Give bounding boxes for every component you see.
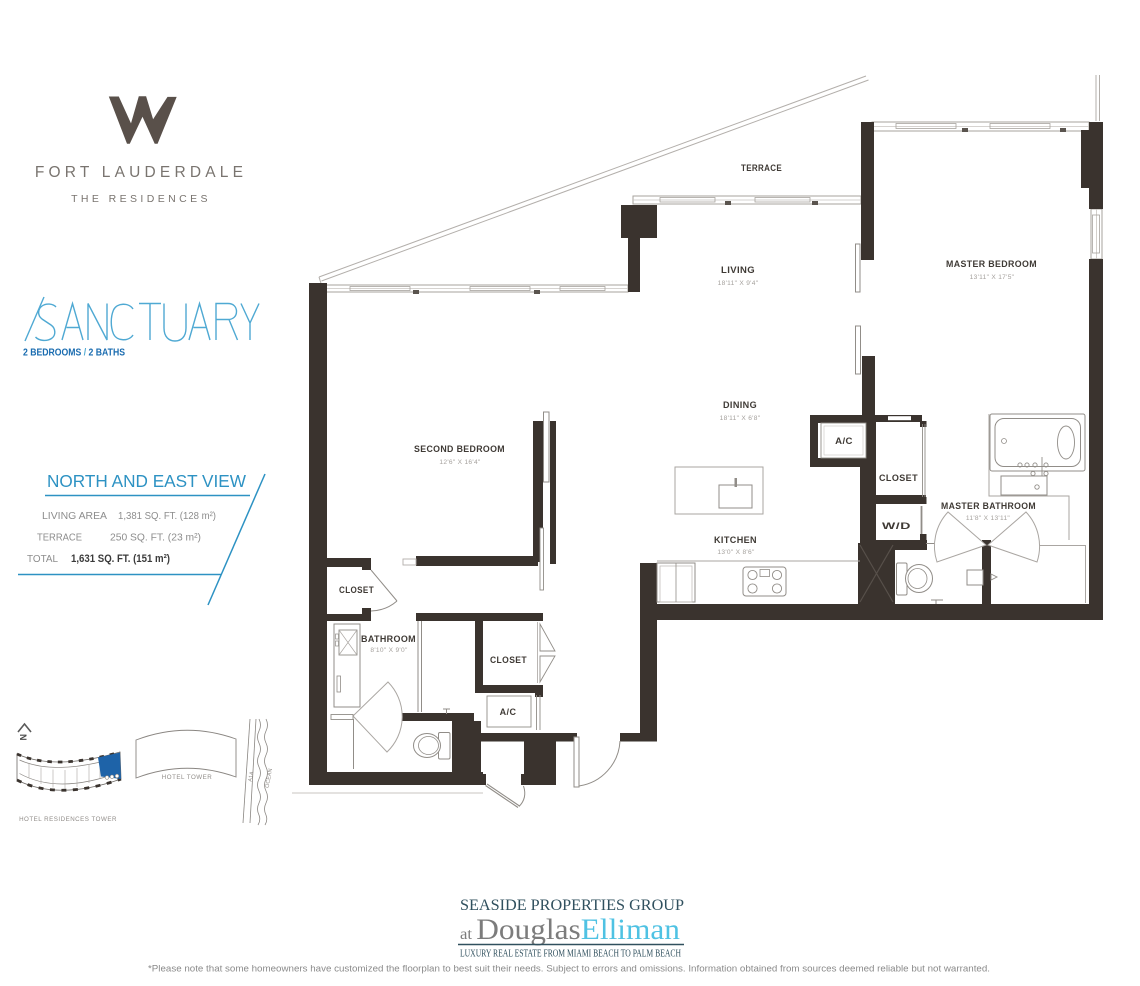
svg-text:MASTER BEDROOM: MASTER BEDROOM — [946, 259, 1037, 270]
svg-text:A/C: A/C — [835, 436, 853, 447]
svg-text:1,631 SQ. FT. (151 m²): 1,631 SQ. FT. (151 m²) — [71, 553, 170, 565]
svg-text:SEASIDE PROPERTIES GROUP: SEASIDE PROPERTIES GROUP — [460, 897, 684, 914]
svg-text:THE RESIDENCES: THE RESIDENCES — [71, 193, 211, 205]
svg-text:11'8" X 13'11": 11'8" X 13'11" — [966, 515, 1011, 522]
svg-text:at DouglasElliman: at DouglasElliman — [460, 913, 680, 946]
svg-text:A/C: A/C — [500, 707, 517, 717]
svg-text:W/D: W/D — [882, 521, 911, 532]
svg-text:18'11" X 9'4": 18'11" X 9'4" — [718, 280, 759, 287]
svg-text:1,381 SQ. FT. (128 m²): 1,381 SQ. FT. (128 m²) — [118, 510, 216, 522]
svg-text:TOTAL: TOTAL — [27, 553, 58, 565]
svg-text:CLOSET: CLOSET — [490, 655, 527, 665]
svg-text:DINING: DINING — [723, 400, 757, 411]
svg-text:N: N — [18, 734, 28, 741]
svg-text:CLOSET: CLOSET — [339, 585, 374, 595]
svg-text:LUXURY REAL ESTATE FROM MIAMI: LUXURY REAL ESTATE FROM MIAMI BEACH TO P… — [460, 949, 681, 960]
svg-text:BATHROOM: BATHROOM — [361, 634, 416, 645]
svg-text:NORTH AND EAST VIEW: NORTH AND EAST VIEW — [47, 471, 246, 491]
svg-text:TERRACE: TERRACE — [37, 532, 82, 544]
svg-text:LIVING AREA: LIVING AREA — [42, 510, 107, 522]
svg-text:12'6" X 16'4": 12'6" X 16'4" — [439, 459, 481, 466]
svg-text:MASTER BATHROOM: MASTER BATHROOM — [941, 501, 1036, 512]
svg-text:18'11" X 6'8": 18'11" X 6'8" — [720, 415, 761, 422]
svg-text:HOTEL RESIDENCES TOWER: HOTEL RESIDENCES TOWER — [19, 816, 117, 823]
svg-text:SECOND BEDROOM: SECOND BEDROOM — [414, 444, 505, 455]
svg-text:FORT LAUDERDALE: FORT LAUDERDALE — [35, 164, 247, 181]
svg-text:KITCHEN: KITCHEN — [714, 535, 757, 546]
svg-text:*Please note that some homeown: *Please note that some homeowners have c… — [148, 964, 990, 974]
svg-text:HOTEL TOWER: HOTEL TOWER — [162, 774, 212, 781]
svg-text:13'0" X 8'6": 13'0" X 8'6" — [717, 549, 755, 556]
svg-text:8'10" X 9'0": 8'10" X 9'0" — [370, 647, 408, 654]
svg-text:LIVING: LIVING — [721, 265, 755, 276]
svg-text:CLOSET: CLOSET — [879, 473, 918, 483]
svg-text:TERRACE: TERRACE — [741, 163, 782, 174]
svg-text:250 SQ. FT. (23 m²): 250 SQ. FT. (23 m²) — [110, 532, 201, 544]
svg-text:13'11" X 17'5": 13'11" X 17'5" — [970, 274, 1015, 281]
svg-text:2 BEDROOMS / 2 BATHS: 2 BEDROOMS / 2 BATHS — [23, 348, 125, 359]
